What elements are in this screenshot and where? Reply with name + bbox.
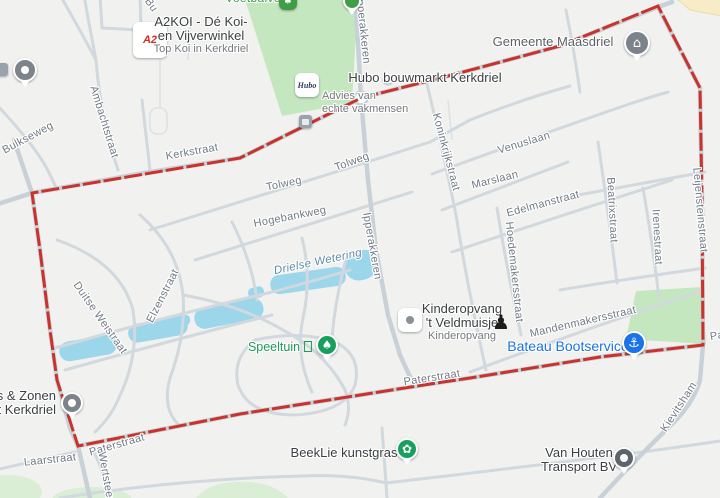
street-label-pa: Pa	[709, 329, 720, 343]
poi-hubo-sub[interactable]: Advies van echte vakmensen	[322, 90, 408, 116]
poi-kinderopvang[interactable]: Kinderopvang 't Veldmuisje Kinderopvang	[422, 302, 502, 343]
sports-park-icon[interactable]: ♠	[279, 0, 297, 10]
poi-zonen[interactable]: os & Zonen rt Kerkdriel	[0, 389, 56, 417]
van-houten-pin[interactable]	[613, 447, 635, 469]
boat-anchor-pin[interactable]: ⚓	[622, 331, 646, 355]
bus-stop-icon[interactable]	[299, 115, 312, 128]
poi-bateau-bootservice[interactable]: Bateau Bootservice	[507, 339, 628, 353]
poi-gemeente-maasdriel[interactable]: Gemeente Maasdriel	[493, 35, 614, 49]
poi-a2koi[interactable]: A2KOI - Dé Koi- en Vijverwinkel Top Koi …	[154, 15, 249, 56]
poi-beeklie[interactable]: BeekLie kunstgras	[291, 446, 398, 460]
map-canvas[interactable]: KerkstraatTolwegTolwegHogebankwegDrielse…	[0, 0, 720, 498]
poi-van-houten[interactable]: Van Houten Transport BV	[541, 446, 617, 474]
highway-area	[676, 0, 720, 16]
poi-speeltuin[interactable]: Speeltuin	[248, 340, 312, 354]
flower-pin[interactable]: ✿	[396, 438, 418, 460]
figure-icon: ♟	[492, 312, 510, 332]
edge-partial-icon	[0, 63, 8, 76]
tofu-glyph	[304, 341, 312, 352]
town-hall-pin[interactable]: ⌂	[624, 30, 650, 56]
kinderopvang-icon[interactable]	[398, 308, 422, 332]
poi-hubo-title[interactable]: Hubo bouwmarkt Kerkdriel	[348, 71, 501, 85]
playground-tree-pin[interactable]: ♠	[316, 334, 338, 356]
zonen-pin[interactable]	[61, 392, 83, 414]
unnamed-poi-pin[interactable]	[13, 58, 37, 82]
hubo-store-icon[interactable]: Hubo	[295, 73, 319, 97]
